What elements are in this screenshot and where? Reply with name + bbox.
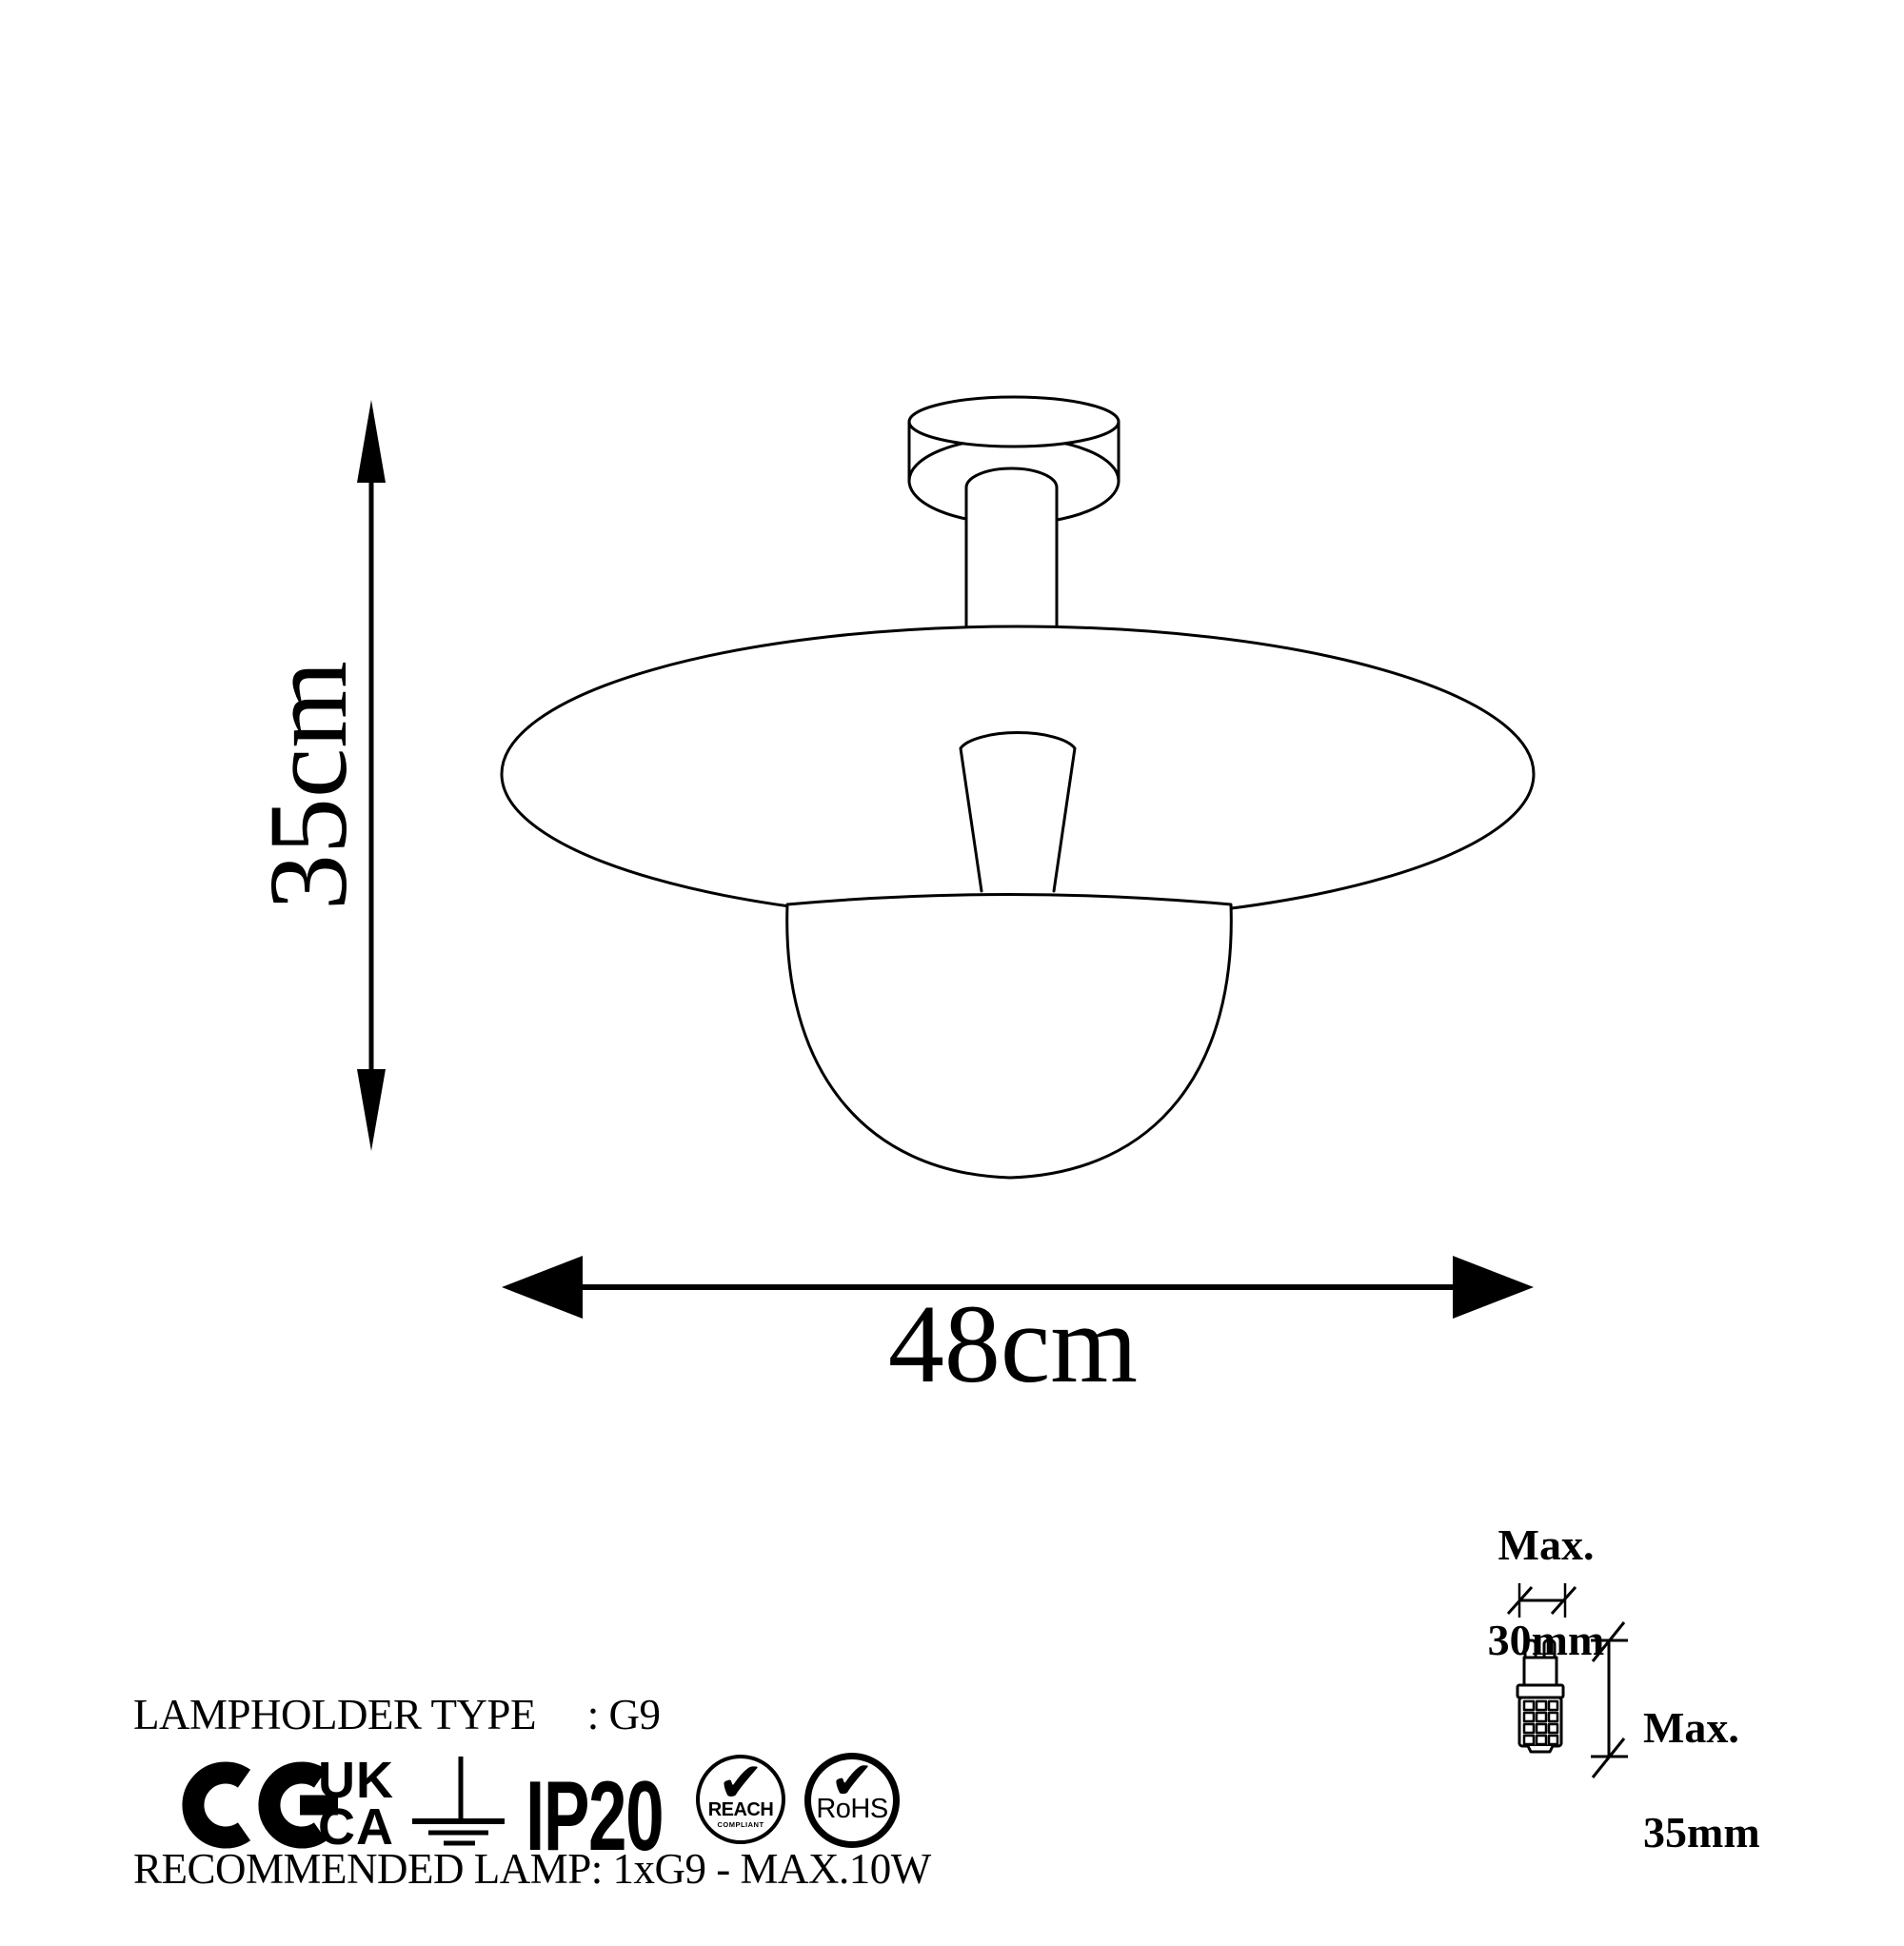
lamp-line-drawing [502,397,1534,1178]
bulb-max-height-word: Max. [1643,1703,1739,1752]
height-dimension-label: 35cm [244,661,373,910]
arrowhead-up-icon [357,400,386,483]
arrowhead-down-icon [357,1069,386,1151]
rohs-badge-title: RoHS [816,1796,887,1823]
bulb-max-width-label: Max. 30mm [1469,1474,1623,1664]
reach-badge-icon: ✔ REACH COMPLIANT [696,1755,785,1844]
lamp-spec-sheet: { "page": { "background": "#ffffff", "in… [0,0,1904,1904]
bulb-max-width-value: 30mm [1488,1616,1605,1664]
ip-rating-label: IP20 [526,1767,663,1866]
ukca-line-uk: UK [318,1757,394,1804]
reach-badge-subtitle: COMPLIANT [717,1821,764,1829]
ukca-mark-icon: UK CA [318,1757,394,1851]
glass-dome [787,895,1232,1179]
rohs-badge-icon: ✔ RoHS [804,1753,900,1848]
reach-badge-title: REACH [708,1800,774,1819]
arrowhead-left-icon [502,1256,583,1319]
stem [966,468,1057,632]
socket-cone [961,733,1075,891]
ukca-line-ca: CA [318,1804,394,1851]
bulb-max-height-value: 35mm [1643,1808,1760,1857]
width-dimension-label: 48cm [888,1280,1138,1409]
lampholder-type-line: LAMPHOLDER TYPE : G9 [133,1689,931,1740]
bulb-max-width-word: Max. [1498,1520,1595,1569]
bulb-max-height-label: Max. 35mm [1643,1649,1760,1858]
arrowhead-right-icon [1453,1256,1534,1319]
